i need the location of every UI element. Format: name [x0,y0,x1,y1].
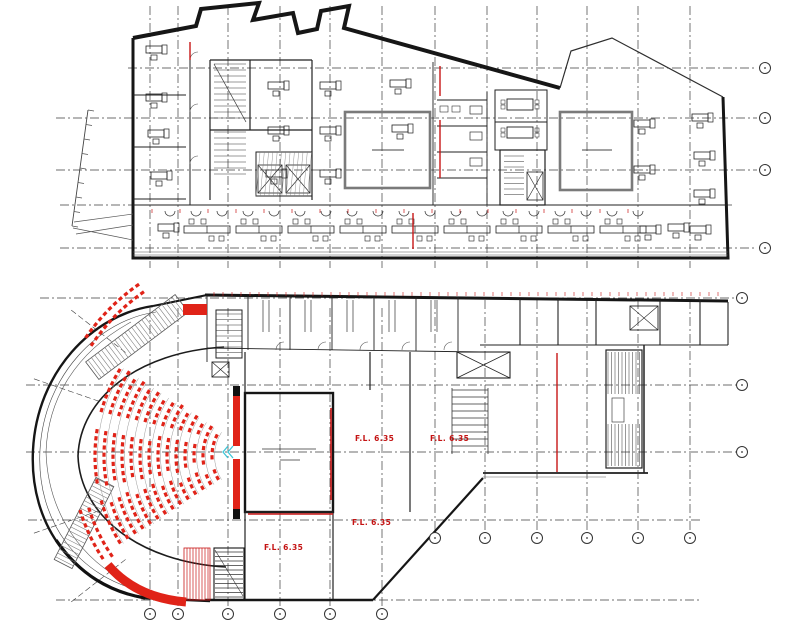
shaft-x [457,352,510,378]
desk-workstation [268,126,289,141]
desk-workstation [690,225,711,240]
desk-workstation [640,225,661,240]
proscenium-red [233,459,240,509]
level-label: F.L. 6.35 [355,434,394,443]
level-label: F.L. 6.35 [264,543,303,552]
stage-marks [262,449,316,460]
grid-bubble [760,243,771,254]
grid-bubble [737,293,748,304]
wall-opening [581,211,591,216]
stepped-landing [612,398,624,422]
lower-plan-walls [33,295,728,601]
grid-bubble [275,609,286,620]
grid-bubble [325,609,336,620]
desk-workstation [390,79,411,94]
door-swings [190,52,198,164]
stair-top-outline [216,310,242,358]
grid-bubbles [145,63,771,620]
grid-bubble [760,113,771,124]
grid-bubble [145,609,156,620]
wall-opening [321,211,331,216]
wall-opening [217,211,227,216]
wall-opening [373,211,383,216]
wall-opening [269,211,279,216]
grid-bubble [480,533,491,544]
wall-opening [503,211,513,216]
dressing-room-walls [207,295,480,362]
desk-workstation [268,81,289,96]
desk-workstation [146,45,167,60]
level-label: F.L. 6.35 [352,518,391,527]
conference-table [501,99,539,110]
grid-bubble [760,63,771,74]
grid-bubble [582,533,593,544]
outer-wall-thin [560,38,723,97]
grid-bubble [633,533,644,544]
wall-opening [243,211,253,216]
grid-bubble [532,533,543,544]
wall-opening [477,211,487,216]
red-block [183,304,207,315]
desk-workstation [694,189,715,204]
conference-table [501,127,539,138]
bench-cluster [444,219,490,241]
desk-workstation [668,223,689,238]
bench-cluster [392,219,438,241]
core-a-walls [210,60,312,200]
wall-opening [607,211,617,216]
wall-opening [347,211,357,216]
proscenium-cap [233,386,240,396]
grid-bubble [737,447,748,458]
wall-opening [165,211,175,216]
site-boundary [72,110,133,240]
grid-bubble [377,609,388,620]
seat-row [174,413,191,501]
backstage-walls [245,352,410,600]
grid-bubble [223,609,234,620]
bench-cluster [288,219,334,241]
lift-box [212,362,229,377]
desk-workstation [148,129,169,144]
grid-bubble [737,380,748,391]
drawing-canvas: F.L. 6.35 F.L. 6.35 F.L. 6.35 F.L. 6.35 [0,0,800,640]
bench-cluster [236,219,282,241]
auditorium-seating [78,283,221,560]
grid-bubble [685,533,696,544]
seat-row [210,432,221,480]
core-b-walls [500,150,545,205]
left-office-partitions [133,48,190,205]
desk-workstation [392,124,413,139]
desk-workstation [151,171,172,186]
desk-workstation [320,81,341,96]
grid-bubble [173,609,184,620]
wall-opening [191,211,201,216]
lift-box [630,306,658,330]
sill-band [133,252,728,255]
lower-plan-detail [54,292,718,602]
level-label: F.L. 6.35 [430,434,469,443]
floor-plan-drawing: F.L. 6.35 F.L. 6.35 F.L. 6.35 F.L. 6.35 [0,0,800,640]
wall-opening [425,211,435,216]
proscenium-red [233,396,240,446]
desk-workstation [158,223,179,238]
balcony-seat-row [87,507,114,557]
desk-workstation [692,113,713,128]
red-foyer-band [108,565,186,602]
wall-opening [529,211,539,216]
balcony-ramp [86,295,189,380]
desk-workstation [694,151,715,166]
desk-workstation [320,169,341,184]
diagonal-wall [373,478,483,600]
site-boundary-ticks [72,110,94,227]
outer-wall-zigzag [133,3,560,88]
wall-opening [451,211,461,216]
open-well-right [560,112,632,190]
proscenium-cap [233,509,240,519]
restroom-walls [433,62,487,205]
right-strip-walls [480,299,728,345]
desk-workstation [634,119,655,134]
stage-box [245,393,333,512]
wall-opening [295,211,305,216]
bench-cluster [496,219,542,241]
bench-cluster [340,219,386,241]
desk-workstation [320,126,341,141]
red-hatch-block [184,548,210,600]
wall-opening [555,211,565,216]
bench-cluster [600,219,646,241]
desk-workstation [634,165,655,180]
grid-bubble [430,533,441,544]
grid-bubble [760,165,771,176]
bench-cluster [184,219,230,241]
